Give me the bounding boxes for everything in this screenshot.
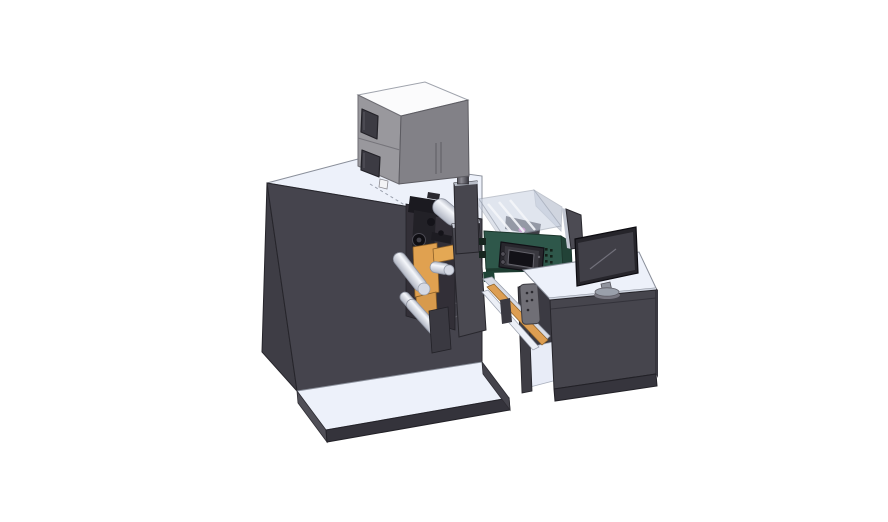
feeder-box-badge — [379, 179, 388, 189]
control-knob-2 — [501, 260, 505, 264]
mounting-bracket-body — [520, 283, 541, 324]
mech-gear-hub — [417, 238, 422, 243]
mech-pin — [438, 230, 444, 236]
cad-render-svg — [0, 0, 888, 522]
monitor-base — [595, 288, 619, 296]
chute-foot — [500, 298, 512, 324]
lower-support-bracket — [429, 307, 451, 353]
mounting-bracket — [520, 283, 541, 324]
feeder-box — [358, 82, 469, 189]
cad-render-canvas — [0, 0, 888, 522]
desk-front-face — [550, 290, 656, 389]
green-left-tab-1 — [479, 238, 486, 245]
mech-gear-small — [427, 218, 435, 226]
green-left-tab-2 — [479, 251, 486, 258]
desk-right-edge — [656, 288, 658, 378]
nip-roller-cap — [444, 265, 454, 275]
control-knob-1 — [501, 252, 505, 256]
unwind-roller-1-cap — [418, 283, 430, 295]
tower-body — [454, 181, 479, 254]
control-led — [538, 256, 540, 258]
